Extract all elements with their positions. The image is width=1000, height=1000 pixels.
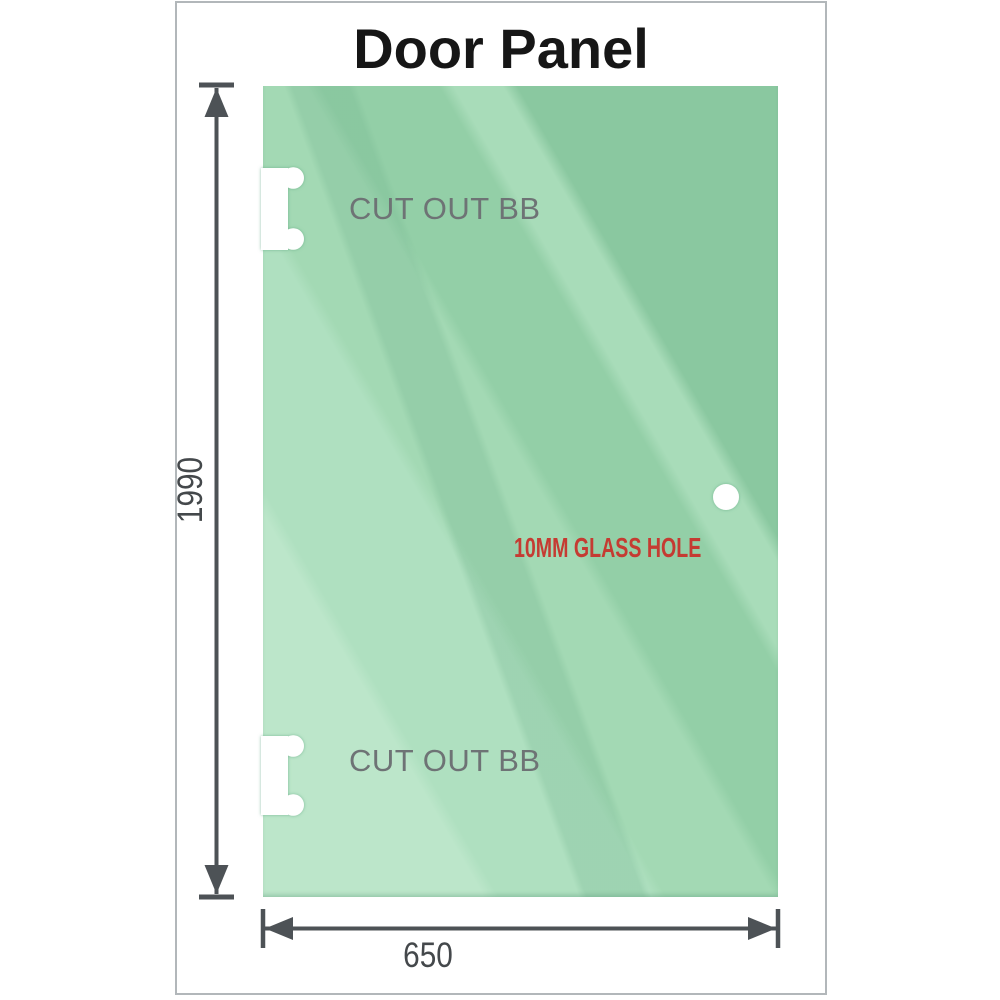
width-dimension-value: 650	[391, 936, 466, 976]
cutout-top-label: CUT OUT BB	[349, 191, 541, 227]
glass-hole-label: 10MM GLASS HOLE	[514, 532, 701, 564]
cutout-bottom-label: CUT OUT BB	[349, 743, 541, 779]
page-title: Door Panel	[175, 16, 827, 81]
door-panel-diagram: Door Panel CUT OUT BB	[0, 0, 1000, 1000]
height-dimension-value: 1990	[171, 456, 211, 524]
